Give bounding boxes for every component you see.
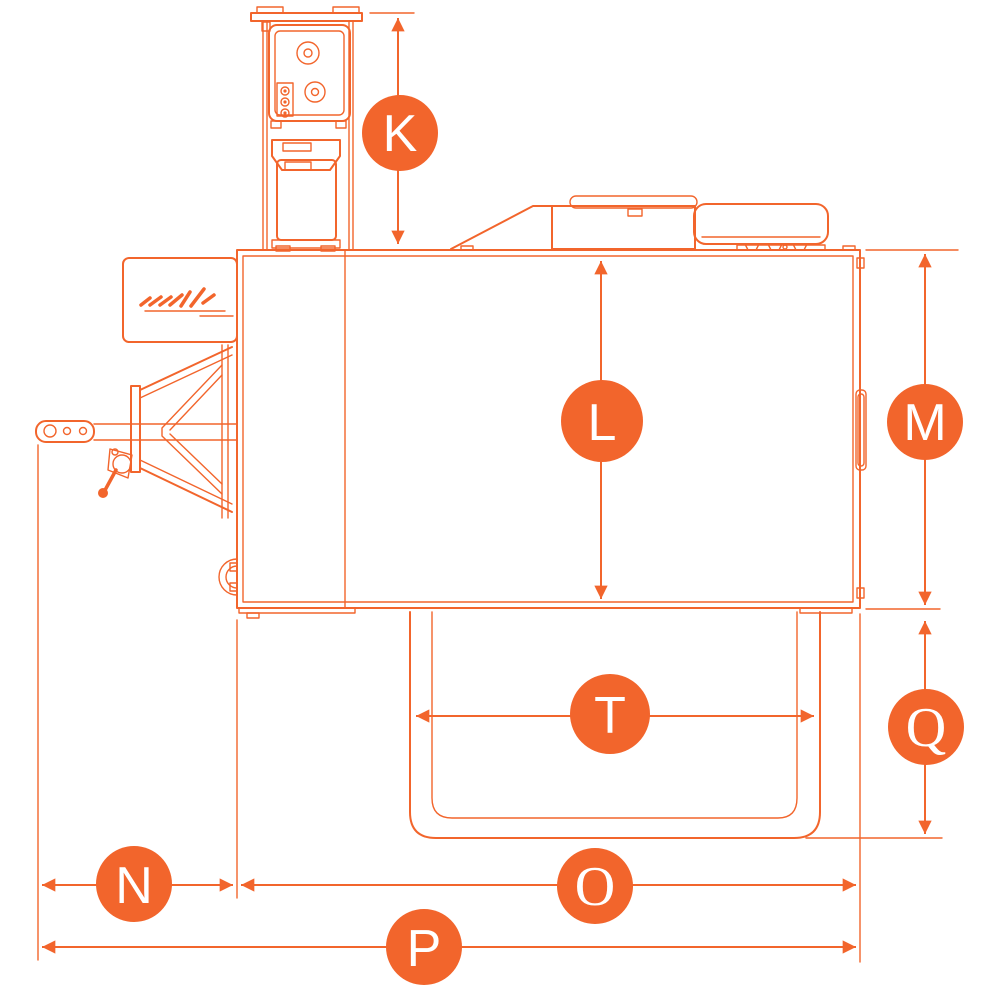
trailer-body xyxy=(237,250,860,618)
dim-label-Q: Q xyxy=(906,697,946,759)
burner-icon xyxy=(297,42,319,64)
crank-handle xyxy=(104,470,116,492)
stack-top-plate xyxy=(251,13,362,21)
front-skid-tab xyxy=(247,613,259,618)
dimension-annotations: K L M Q T N xyxy=(38,13,964,985)
roof-equipment xyxy=(451,196,855,250)
dim-label-T: T xyxy=(594,687,626,745)
wheel-hub xyxy=(219,559,237,595)
drawbar-assembly xyxy=(36,345,237,518)
dimension-L: L xyxy=(561,261,643,599)
dimension-P: P xyxy=(42,909,856,985)
dimension-N: N xyxy=(42,846,233,922)
roof-hood xyxy=(552,196,697,249)
dimension-diagram: K L M Q T N xyxy=(0,0,1000,1000)
trailer-line-drawing: K L M Q T N xyxy=(0,0,1000,1000)
dimension-Q: Q xyxy=(888,621,964,834)
vent-icon xyxy=(628,209,642,216)
dim-label-M: M xyxy=(903,394,946,452)
dimension-K: K xyxy=(362,18,438,244)
hitch-coupler xyxy=(36,421,94,442)
a-frame xyxy=(131,345,232,518)
dimension-M: M xyxy=(887,254,963,605)
roof-wedge xyxy=(451,206,552,249)
dim-label-O: O xyxy=(575,856,615,918)
dim-label-N: N xyxy=(115,857,153,915)
dim-label-L: L xyxy=(588,394,617,452)
roof-stack xyxy=(251,7,362,251)
brand-panel xyxy=(123,258,237,342)
brand-logo xyxy=(141,289,233,316)
dim-label-K: K xyxy=(383,105,418,163)
roof-ac-unit xyxy=(694,204,828,250)
jockey-clamp xyxy=(98,449,132,498)
dim-label-P: P xyxy=(407,920,442,978)
dimension-T: T xyxy=(416,674,814,754)
burner-icon xyxy=(305,82,325,102)
knob-panel xyxy=(277,83,293,116)
dimension-O: O xyxy=(241,848,856,924)
cooktop-unit xyxy=(269,25,350,121)
container-unit xyxy=(272,140,340,251)
